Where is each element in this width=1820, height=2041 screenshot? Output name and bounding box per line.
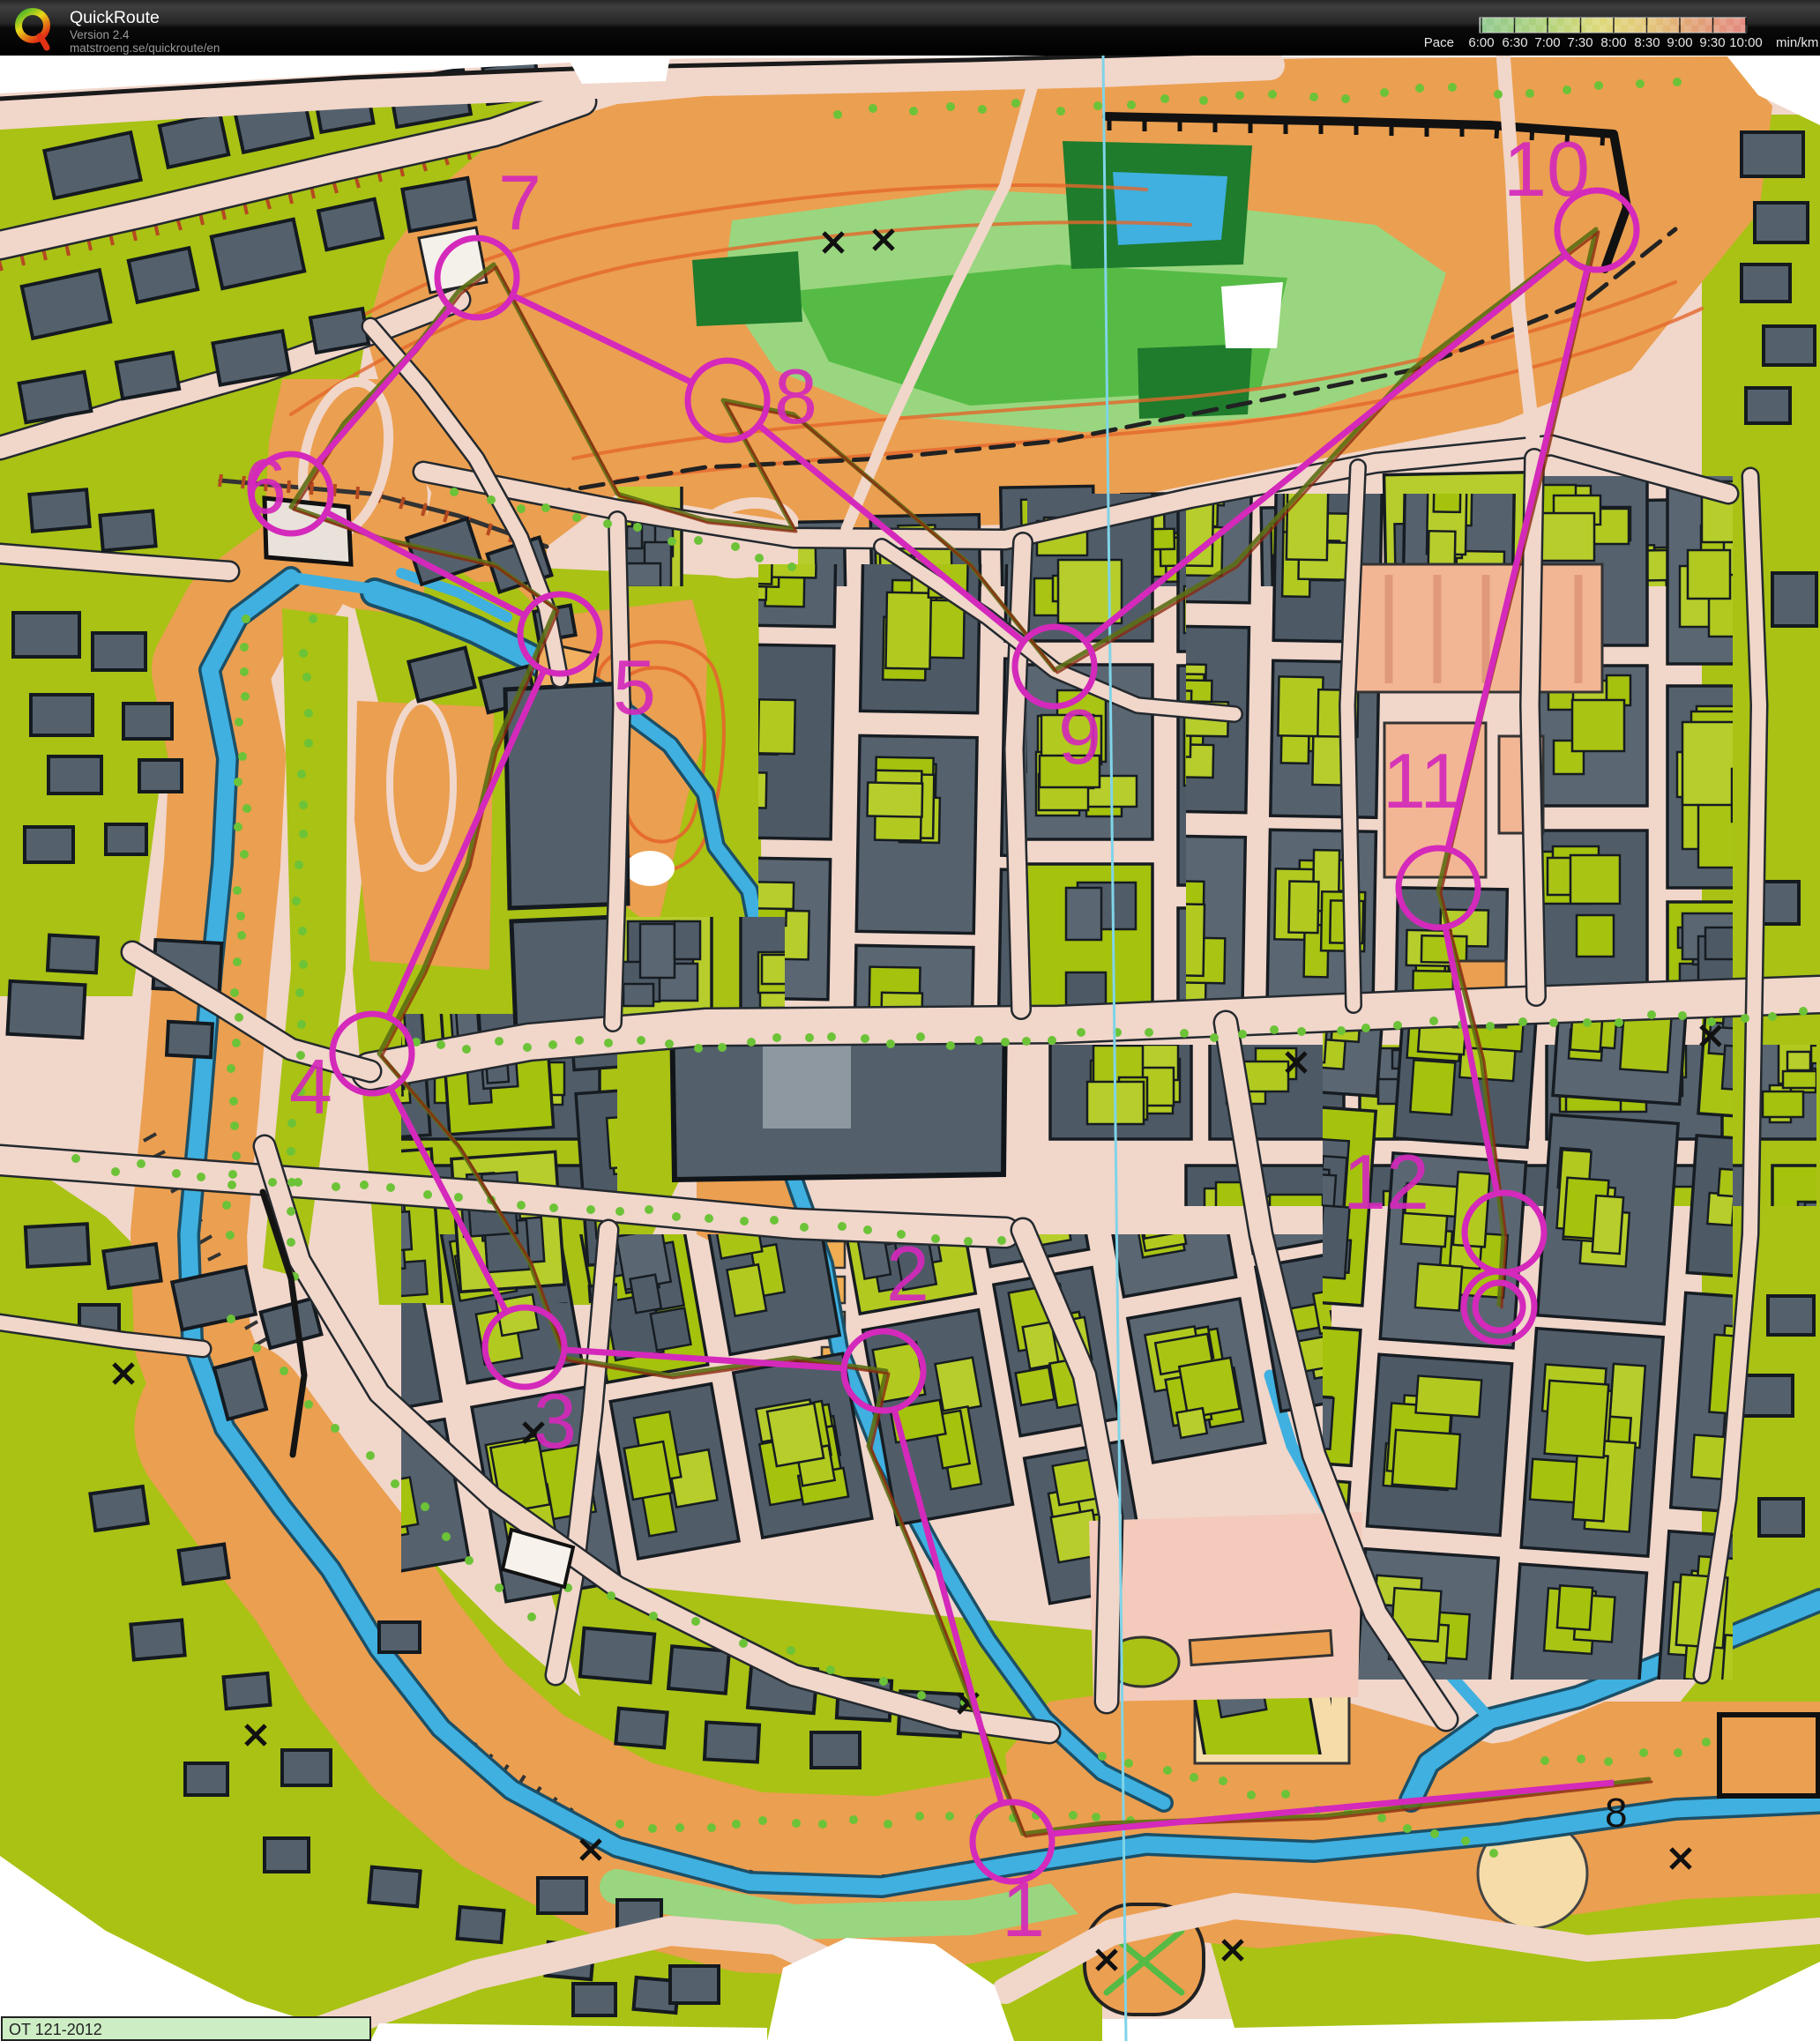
svg-text:9:30: 9:30 bbox=[1699, 35, 1725, 50]
svg-text:2: 2 bbox=[886, 1230, 929, 1317]
svg-text:10:00: 10:00 bbox=[1729, 35, 1763, 50]
svg-text:10: 10 bbox=[1503, 125, 1590, 212]
svg-text:12: 12 bbox=[1343, 1138, 1429, 1225]
svg-text:4: 4 bbox=[289, 1043, 332, 1130]
svg-text:8:30: 8:30 bbox=[1634, 35, 1660, 50]
svg-text:3: 3 bbox=[533, 1377, 577, 1464]
svg-text:Pace: Pace bbox=[1424, 35, 1454, 50]
svg-text:5: 5 bbox=[613, 644, 656, 731]
svg-text:min/km: min/km bbox=[1776, 35, 1818, 50]
svg-text:7: 7 bbox=[498, 159, 541, 246]
svg-text:7:30: 7:30 bbox=[1567, 35, 1592, 50]
svg-text:6:00: 6:00 bbox=[1468, 35, 1494, 50]
svg-text:OT 121-2012: OT 121-2012 bbox=[9, 2021, 102, 2038]
svg-text:1: 1 bbox=[1002, 1866, 1045, 1953]
svg-text:8: 8 bbox=[774, 353, 817, 440]
svg-text:Version 2.4: Version 2.4 bbox=[70, 28, 130, 41]
svg-text:9:00: 9:00 bbox=[1667, 35, 1692, 50]
svg-text:6:30: 6:30 bbox=[1502, 35, 1527, 50]
svg-text:11: 11 bbox=[1383, 737, 1463, 824]
svg-text:matstroeng.se/quickroute/en: matstroeng.se/quickroute/en bbox=[70, 41, 220, 55]
svg-text:9: 9 bbox=[1058, 693, 1101, 780]
svg-text:8: 8 bbox=[1605, 1790, 1628, 1836]
svg-text:QuickRoute: QuickRoute bbox=[70, 8, 160, 27]
svg-text:8:00: 8:00 bbox=[1600, 35, 1626, 50]
svg-text:6: 6 bbox=[243, 443, 287, 530]
svg-text:7:00: 7:00 bbox=[1534, 35, 1560, 50]
